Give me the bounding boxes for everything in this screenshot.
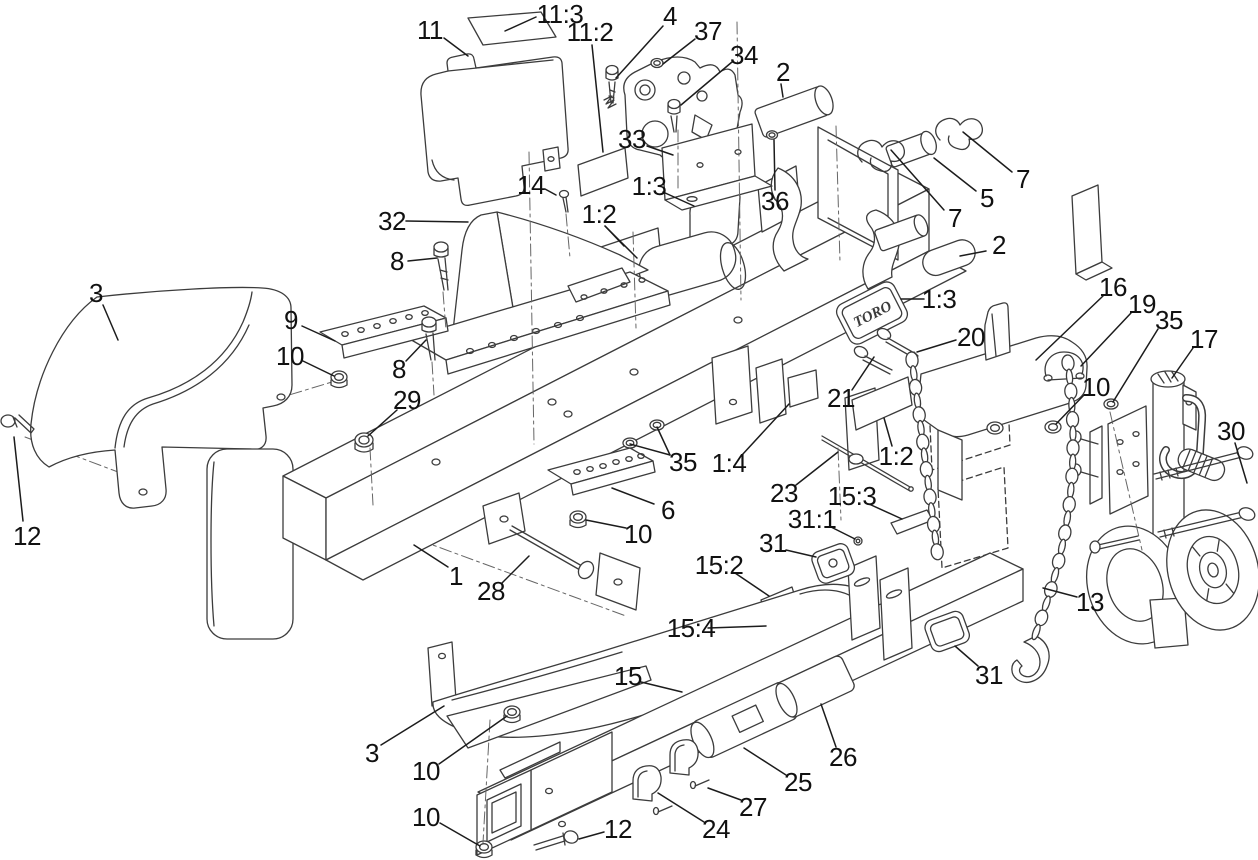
log-splitter-exploded-diagram: TORO bbox=[0, 0, 1258, 860]
side-pad-block bbox=[207, 449, 293, 639]
engine-cover bbox=[421, 54, 568, 206]
diagram-line-art: TORO bbox=[0, 0, 1258, 860]
tongue-plate bbox=[918, 303, 1087, 500]
chain-hook bbox=[1012, 636, 1049, 682]
cross-bolt-brackets bbox=[483, 493, 640, 610]
